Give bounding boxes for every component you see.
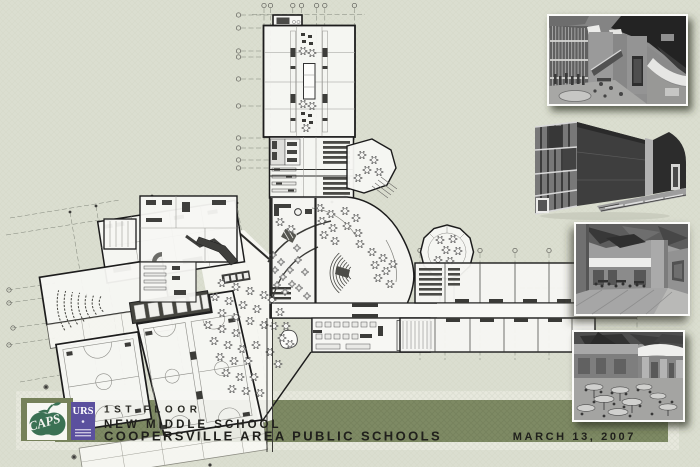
svg-text:URS: URS [72, 406, 93, 417]
svg-text:COOPERSVILLE AREA PUBLIC SCHOO: COOPERSVILLE AREA PUBLIC SCHOOLS [104, 429, 442, 444]
svg-text:1ST FLOOR: 1ST FLOOR [104, 405, 202, 416]
svg-text:MARCH 13, 2007: MARCH 13, 2007 [513, 431, 636, 443]
